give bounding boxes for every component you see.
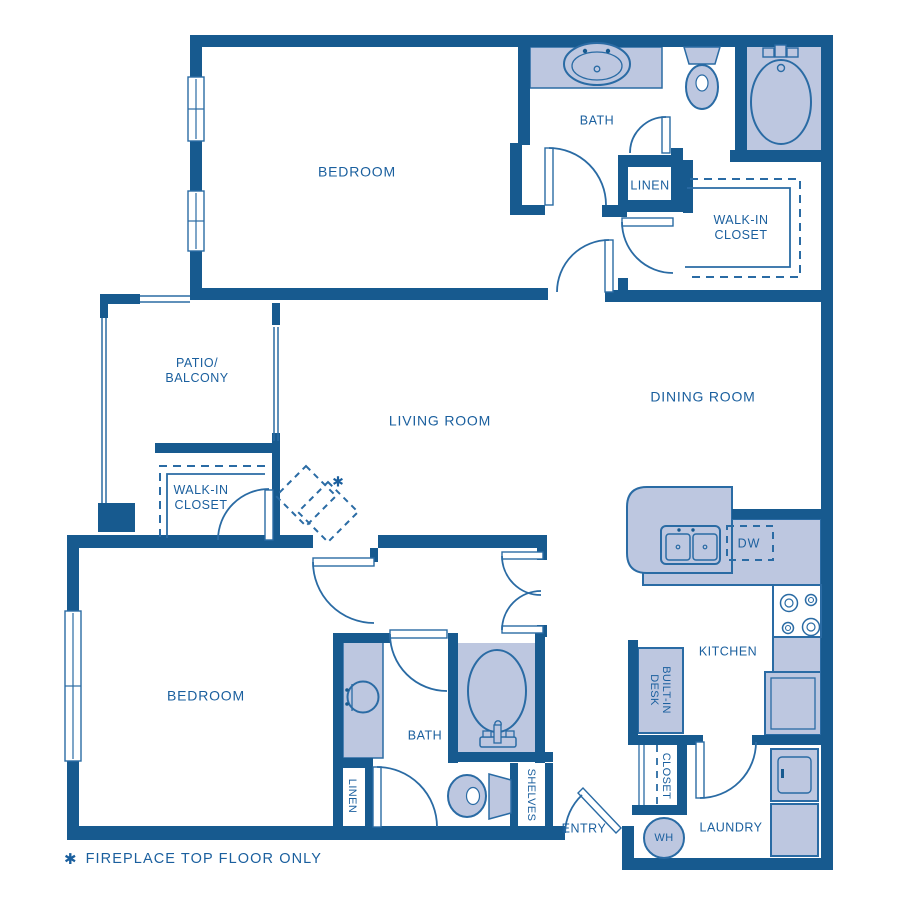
door-linen-top [630, 117, 670, 153]
label-linen-bottom: LINEN [346, 779, 358, 813]
label-desk-line2: DESK [648, 674, 660, 706]
label-patio-line1: PATIO/ [176, 356, 218, 371]
window-bedroom-top-2 [188, 191, 204, 251]
kitchen-lower-counter [773, 637, 821, 672]
label-dishwasher: DW [738, 537, 761, 552]
label-kitchen: KITCHEN [699, 645, 757, 660]
label-entry: ENTRY [562, 822, 607, 837]
door-bedroom-bottom [313, 558, 374, 623]
floor-plan-drawing [0, 0, 900, 900]
label-bedroom-bottom: BEDROOM [167, 689, 245, 704]
label-walkin-top-line2: CLOSET [714, 228, 767, 243]
patio-slider [274, 327, 278, 441]
door-toilet-bottom [373, 767, 437, 827]
label-bedroom-top: BEDROOM [318, 165, 396, 180]
label-shelves: SHELVES [525, 769, 537, 822]
toilet-top [684, 47, 720, 109]
window-bedroom-bottom [65, 611, 81, 761]
patio-screens [102, 296, 278, 503]
label-laundry: LAUNDRY [699, 821, 762, 836]
label-linen-top: LINEN [630, 179, 669, 194]
floor-plan: BEDROOM BATH LINEN WALK-IN CLOSET PATIO/… [0, 0, 900, 900]
label-built-in-desk: BUILT-IN DESK [648, 666, 672, 714]
windows [65, 77, 278, 761]
label-walkin-mid: WALK-IN CLOSET [173, 483, 228, 513]
door-laundry [696, 742, 756, 798]
door-bath-bottom [390, 630, 447, 691]
label-desk-line1: BUILT-IN [660, 666, 672, 714]
refrigerator [765, 672, 821, 735]
kitchen-sink [661, 526, 720, 564]
closet-front [639, 745, 644, 805]
window-bedroom-top-1 [188, 77, 204, 141]
label-walkin-mid-line2: CLOSET [174, 498, 227, 513]
fireplace-asterisk: ✱ [332, 474, 344, 491]
label-bath-top: BATH [580, 114, 614, 129]
stove [773, 585, 821, 637]
label-dining-room: DINING ROOM [650, 390, 755, 405]
footnote-text: FIREPLACE TOP FLOOR ONLY [86, 851, 322, 867]
label-patio-line2: BALCONY [165, 371, 228, 386]
dryer [771, 749, 818, 801]
walls [67, 35, 833, 870]
toilet-bottom [448, 774, 511, 819]
sink-top-bath [564, 43, 630, 85]
footnote: ✱ FIREPLACE TOP FLOOR ONLY [64, 850, 322, 868]
label-walkin-top-line1: WALK-IN [713, 213, 768, 228]
label-walkin-top: WALK-IN CLOSET [713, 213, 768, 243]
washer [771, 804, 818, 856]
label-bath-bottom: BATH [408, 729, 442, 744]
fireplace-dashed [276, 466, 358, 542]
label-closet-bottom: CLOSET [660, 753, 672, 799]
double-doors-hall [502, 552, 543, 633]
label-living-room: LIVING ROOM [389, 414, 491, 429]
label-water-heater: WH [654, 832, 673, 844]
door-bedroom-top [557, 240, 613, 292]
label-patio-balcony: PATIO/ BALCONY [165, 356, 228, 386]
footnote-star: ✱ [64, 850, 77, 868]
door-bath-top [545, 148, 606, 205]
label-walkin-mid-line1: WALK-IN [173, 483, 228, 498]
door-walkin-top [622, 218, 673, 273]
